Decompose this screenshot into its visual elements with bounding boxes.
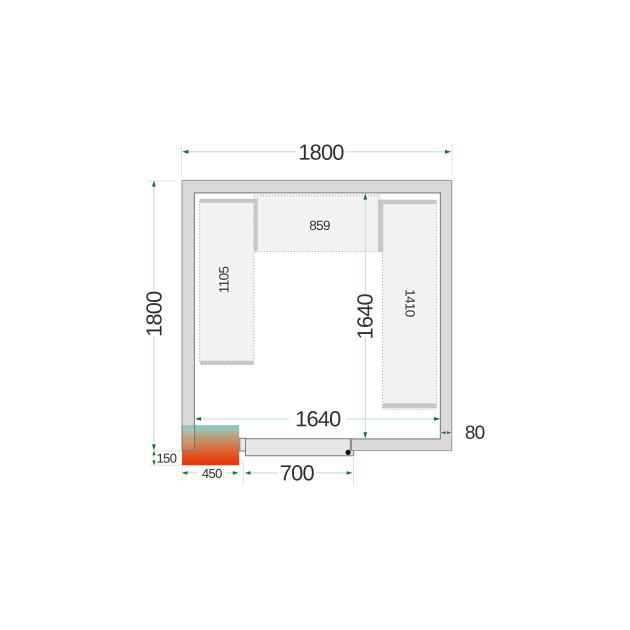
svg-text:1105: 1105 [216,266,231,293]
svg-text:1800: 1800 [142,291,167,337]
svg-text:859: 859 [309,218,330,233]
svg-text:1410: 1410 [403,289,418,317]
svg-text:80: 80 [465,423,485,444]
svg-text:450: 450 [202,466,222,481]
svg-text:1640: 1640 [353,293,378,339]
svg-text:150: 150 [156,451,176,466]
svg-text:1640: 1640 [295,406,341,431]
svg-text:700: 700 [280,460,315,485]
svg-text:1800: 1800 [298,140,344,165]
